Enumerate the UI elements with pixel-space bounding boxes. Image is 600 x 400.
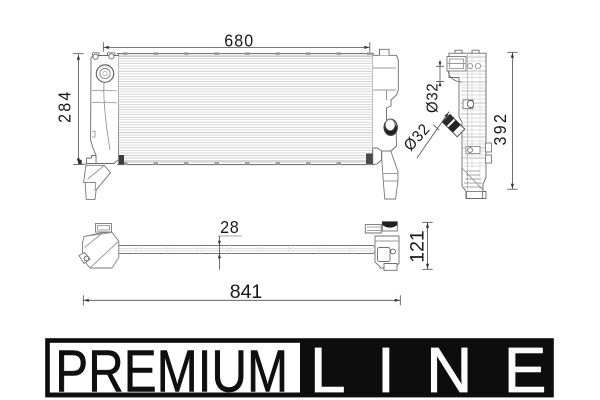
svg-text:392: 392 (491, 112, 511, 146)
svg-text:LINE: LINE (310, 334, 578, 400)
svg-text:PREMIUM: PREMIUM (55, 338, 288, 400)
svg-text:Ø32: Ø32 (401, 120, 434, 154)
svg-text:841: 841 (230, 281, 263, 303)
svg-text:284: 284 (55, 90, 75, 123)
svg-text:Ø32: Ø32 (424, 83, 442, 113)
svg-text:680: 680 (224, 31, 254, 51)
svg-text:121: 121 (407, 230, 429, 263)
svg-text:28: 28 (220, 217, 239, 237)
